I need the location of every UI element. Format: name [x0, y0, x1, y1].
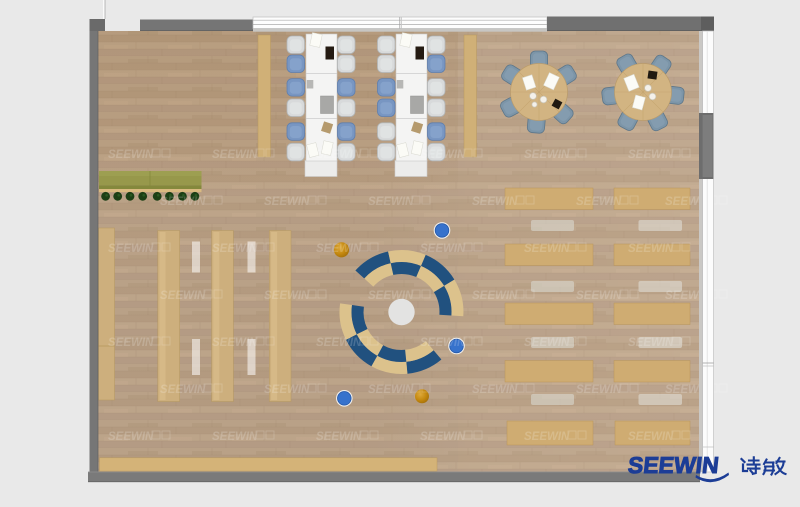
svg-text:SEEWIN: SEEWIN: [316, 149, 362, 161]
svg-text:SEEWIN: SEEWIN: [628, 243, 674, 255]
svg-text:SEEWIN: SEEWIN: [420, 149, 466, 161]
svg-text:SEEWIN: SEEWIN: [576, 384, 622, 396]
svg-text:SEEWIN: SEEWIN: [316, 243, 362, 255]
svg-text:SEEWIN: SEEWIN: [368, 384, 414, 396]
svg-text:SEEWIN: SEEWIN: [576, 290, 622, 302]
svg-text:SEEWIN: SEEWIN: [368, 290, 414, 302]
svg-text:SEEWIN: SEEWIN: [108, 243, 154, 255]
svg-text:SEEWIN: SEEWIN: [212, 243, 258, 255]
svg-text:SEEWIN: SEEWIN: [627, 452, 720, 478]
svg-text:SEEWIN: SEEWIN: [524, 337, 570, 349]
svg-text:SEEWIN: SEEWIN: [368, 196, 414, 208]
svg-text:SEEWIN: SEEWIN: [524, 431, 570, 443]
svg-text:SEEWIN: SEEWIN: [160, 290, 206, 302]
svg-text:SEEWIN: SEEWIN: [316, 337, 362, 349]
svg-text:SEEWIN: SEEWIN: [628, 431, 674, 443]
svg-text:SEEWIN: SEEWIN: [524, 149, 570, 161]
svg-text:SEEWIN: SEEWIN: [212, 431, 258, 443]
svg-text:SEEWIN: SEEWIN: [264, 384, 310, 396]
svg-text:SEEWIN: SEEWIN: [264, 290, 310, 302]
svg-text:SEEWIN: SEEWIN: [628, 337, 674, 349]
svg-text:SEEWIN: SEEWIN: [420, 431, 466, 443]
svg-text:SEEWIN: SEEWIN: [212, 149, 258, 161]
svg-text:SEEWIN: SEEWIN: [472, 384, 518, 396]
svg-text:SEEWIN: SEEWIN: [108, 337, 154, 349]
svg-text:SEEWIN: SEEWIN: [420, 243, 466, 255]
svg-text:SEEWIN: SEEWIN: [264, 196, 310, 208]
svg-text:SEEWIN: SEEWIN: [420, 337, 466, 349]
svg-text:SEEWIN: SEEWIN: [472, 196, 518, 208]
svg-text:SEEWIN: SEEWIN: [160, 384, 206, 396]
svg-text:SEEWIN: SEEWIN: [108, 149, 154, 161]
svg-text:SEEWIN: SEEWIN: [160, 196, 206, 208]
svg-text:SEEWIN: SEEWIN: [628, 149, 674, 161]
svg-text:SEEWIN: SEEWIN: [524, 243, 570, 255]
svg-text:SEEWIN: SEEWIN: [576, 196, 622, 208]
svg-text:SEEWIN: SEEWIN: [316, 431, 362, 443]
svg-text:SEEWIN: SEEWIN: [472, 290, 518, 302]
svg-text:SEEWIN: SEEWIN: [212, 337, 258, 349]
svg-text:SEEWIN: SEEWIN: [108, 431, 154, 443]
